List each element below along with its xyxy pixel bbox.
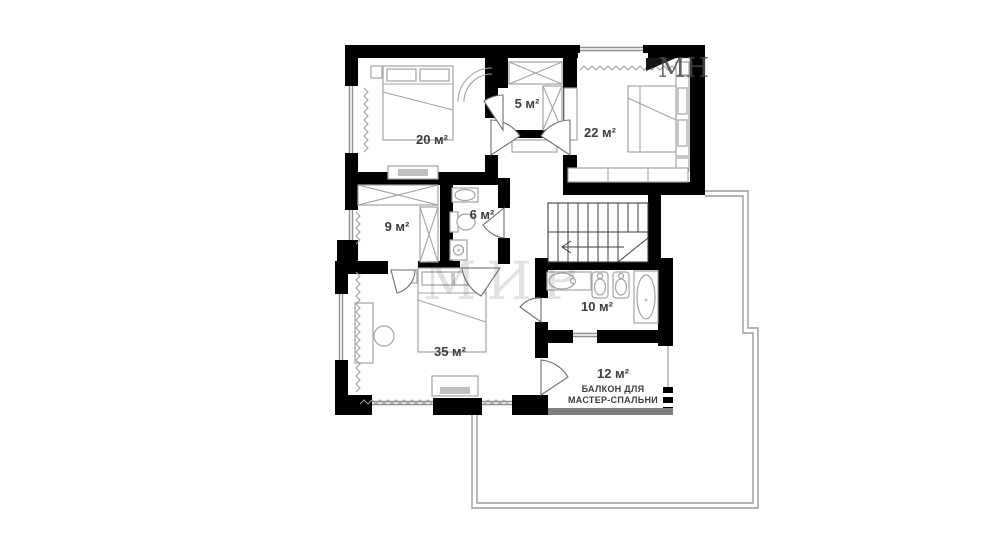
- room-label-wardrobe-9: 9 м²: [385, 219, 410, 234]
- bathroom-6-fixtures: [450, 188, 478, 260]
- sink-faucet: [619, 274, 624, 279]
- window-bathroom10-bottom: [573, 334, 597, 337]
- window-bedroom22-top: [578, 48, 648, 51]
- sink-basin: [455, 190, 475, 201]
- room-label-bedroom-20: 20 м²: [416, 132, 449, 147]
- door-wardrobe9: [391, 270, 415, 293]
- room-label-bathroom-10: 10 м²: [581, 299, 614, 314]
- nightstand-symbol: [371, 66, 382, 78]
- pillow-symbol: [678, 88, 687, 114]
- pillow-symbol: [678, 120, 687, 146]
- pillow-symbol: [387, 69, 416, 81]
- door-balcony12: [541, 360, 568, 395]
- watermark-center: МИР: [423, 252, 587, 312]
- bed-symbol: [628, 86, 676, 152]
- watermark-top-right: МН: [658, 53, 709, 84]
- tv-symbol: [440, 387, 470, 394]
- low-cabinet-row: [568, 168, 688, 182]
- balcony-caption-line2: МАСТЕР-СПАЛЬНИ: [568, 395, 658, 405]
- sink-basin: [616, 279, 627, 295]
- window-bedroom20-left: [350, 86, 353, 153]
- sink-basin: [595, 279, 606, 295]
- window-master35-left: [340, 294, 343, 360]
- bathtub-drain: [645, 299, 648, 302]
- room-label-bedroom-22: 22 м²: [584, 125, 617, 140]
- balcony-bottom-wall: [548, 408, 673, 415]
- room-label-balcony-12: 12 м²: [597, 366, 630, 381]
- chair-symbol: [374, 326, 394, 346]
- floor-plan-svg: МИР МН 20 м² 5 м² 22 м² 9 м² 6 м² 10 м² …: [0, 0, 1000, 553]
- curtain-zigzag: [356, 212, 360, 244]
- room-label-closet-5: 5 м²: [515, 96, 540, 111]
- floor-plan-page: МИР МН 20 м² 5 м² 22 м² 9 м² 6 м² 10 м² …: [0, 0, 1000, 553]
- dresser-top: [398, 169, 428, 176]
- window-wardrobe9-left: [350, 210, 353, 240]
- sink-faucet: [598, 274, 603, 279]
- bedroom-20-furniture: [364, 66, 492, 179]
- balcony-caption-line1: БАЛКОН ДЛЯ: [582, 384, 645, 394]
- room-label-bathroom-6: 6 м²: [470, 207, 495, 222]
- room-label-master-35: 35 м²: [434, 344, 467, 359]
- curtain-zigzag: [364, 88, 368, 152]
- pillow-symbol: [420, 69, 449, 81]
- bathtub-basin: [637, 275, 655, 319]
